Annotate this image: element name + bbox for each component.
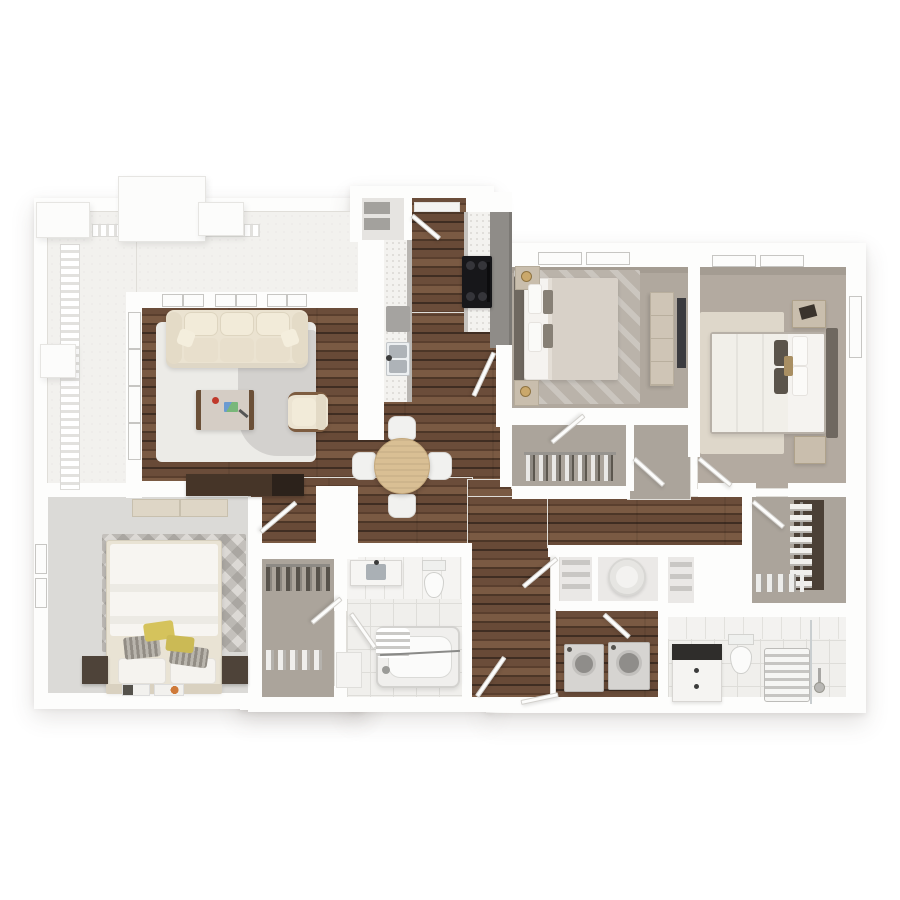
stove-burner [466, 292, 475, 301]
closet2-shoe-row [756, 574, 804, 592]
dryer-dial [611, 645, 616, 650]
shower-glass-panel [810, 620, 812, 704]
dining-chair-right [428, 452, 452, 480]
wall-closet1-left [500, 425, 512, 487]
dining-table [374, 438, 430, 494]
bedroom1-pillow [528, 284, 542, 314]
bedroom1-wall-tv [677, 298, 686, 368]
balcony-pillar-4 [40, 344, 76, 378]
balcony-pillar-3 [198, 202, 244, 236]
washer-dial [567, 647, 572, 652]
linen2-shelf [670, 562, 692, 567]
bathroom2-vanity-top [672, 644, 722, 660]
bedroom3-magazine [122, 684, 150, 696]
armchair-cushion [292, 398, 316, 426]
hall-wood-floor-bedrooms [548, 497, 750, 547]
balcony-pillar-2 [118, 176, 206, 242]
bedroom3-window-1 [35, 544, 47, 574]
bedroom2-headboard [826, 328, 838, 438]
stove-burner [478, 261, 487, 270]
bathroom1-faucet [374, 560, 379, 565]
wall-bathroom1-top [342, 543, 472, 557]
bedroom1-lamp [520, 386, 531, 397]
shower-slatted-screen [764, 648, 810, 702]
bathroom1-linen-niche [336, 652, 362, 688]
bedroom2-nightstand-bottom [794, 436, 826, 464]
wall-bedroom1-bottom [512, 408, 690, 425]
bathroom1-toilet-tank [422, 560, 446, 571]
washer-lid [572, 652, 596, 676]
linen2-shelf [670, 574, 692, 579]
bedroom3-pillow-yellow [165, 635, 195, 654]
sofa-cushion [220, 312, 254, 336]
bedroom3-nightstand-right [222, 656, 248, 684]
balcony-pillar-1 [36, 202, 90, 238]
wall-water-heater-right [658, 547, 668, 707]
kitchen-dishwasher [386, 306, 410, 332]
bathroom2-faucet [694, 668, 699, 673]
bedroom2-pillow-white [792, 336, 808, 366]
dining-chair-bottom [388, 494, 416, 518]
bathroom1-sink [366, 564, 386, 580]
wall-linen-divider [592, 555, 598, 605]
wall-pantry-divider [404, 198, 412, 242]
wall-under-hall [548, 545, 750, 557]
linen2-shelf [670, 586, 692, 591]
bedroom2-window-right [849, 296, 862, 358]
kitchen-gray-accent-wall [490, 198, 512, 348]
closet3-hanging-clothes [266, 567, 330, 591]
wall-bathroom2-top [668, 603, 846, 617]
stove-burner [478, 292, 487, 301]
bedroom1-lamp [521, 271, 532, 282]
wall-kitchen-left [358, 240, 384, 440]
bedroom1-accent-pillow [543, 290, 553, 314]
linen1-shelf [562, 572, 590, 577]
wall-bathroom1-right [462, 543, 472, 707]
pantry-shelf [364, 202, 390, 214]
bedroom3-window-2 [35, 578, 47, 608]
wall-closet3-right-lower [334, 686, 347, 700]
living-window-2 [215, 294, 257, 307]
bedroom1-duvet [548, 278, 618, 380]
closet3-shoe-row [266, 650, 326, 670]
wall-bedroom1-left-lower [496, 345, 512, 427]
sofa-seat [220, 338, 254, 362]
bedroom3-dresser [132, 499, 228, 517]
bedroom1-window-2 [586, 252, 630, 265]
wall-laundry-top [556, 601, 660, 611]
bedroom2-pillow-white [792, 366, 808, 396]
pantry-shelf [364, 218, 390, 230]
entry-door-mat [414, 202, 460, 212]
water-heater [608, 558, 646, 596]
wall-mid-block [316, 486, 358, 546]
bedroom1-pillow [528, 322, 542, 352]
bedroom2-pillow-tan [784, 356, 793, 376]
living-window-left-tall [128, 312, 141, 460]
bedroom1-headboard [514, 276, 524, 382]
shower-head [814, 682, 825, 693]
linen1-shelf [562, 584, 590, 589]
kitchen-wood-floor [408, 196, 468, 312]
bedroom2-window-1 [712, 255, 756, 267]
tv-console-dark-section [272, 474, 304, 496]
kitchen-sink-basin [389, 360, 407, 373]
living-window-1 [162, 294, 204, 307]
kitchen-faucet [386, 355, 392, 361]
stove-control-strip [487, 262, 490, 302]
wall-kitchen-right-cap [466, 192, 512, 212]
wall-closet1-bottom [512, 486, 630, 499]
bedroom3-pillow-white [118, 658, 166, 684]
bathroom2-faucet [694, 684, 699, 689]
bedroom1-accent-pillow [543, 324, 553, 348]
bedroom1-dresser [650, 292, 674, 386]
floorplan-canvas [0, 0, 900, 900]
bathroom2-toilet-tank [728, 634, 754, 645]
wall-mass-bath2 [694, 557, 742, 603]
wall-bedroom2-left-lower [688, 425, 700, 457]
wall-between-bedrooms [688, 250, 700, 425]
bedroom2-window-2 [760, 255, 804, 267]
closet1-hanging-clothes [526, 455, 616, 481]
bedroom2-wall-face [698, 267, 848, 275]
dining-chair-top [388, 416, 416, 440]
coffee-table-candle [212, 397, 219, 404]
coffee-table-magazine [224, 402, 238, 412]
bedroom3-nightstand-left [82, 656, 108, 684]
dining-chair-left [352, 452, 376, 480]
bedroom3-magazine [154, 684, 184, 696]
dryer-lid [616, 650, 642, 676]
stove-burner [466, 261, 475, 270]
linen1-shelf [562, 560, 590, 565]
armchair-back [316, 394, 326, 430]
living-window-3 [267, 294, 307, 307]
bathroom2-wall-tiles [668, 617, 846, 639]
wall-bedroom2-bottom-right [788, 483, 848, 497]
bathtub-faucet [382, 666, 390, 674]
bedroom1-window-1 [538, 252, 582, 265]
hall-wood-floor-vertical [468, 497, 550, 707]
